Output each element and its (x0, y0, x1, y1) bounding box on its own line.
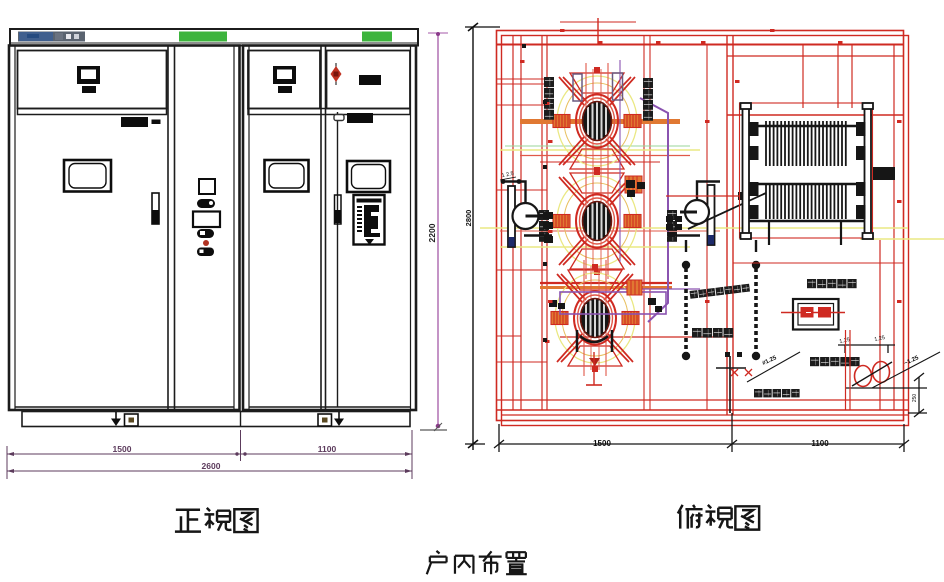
svg-text:1500: 1500 (113, 444, 132, 454)
svg-text:250: 250 (912, 394, 918, 403)
svg-text:1100: 1100 (811, 439, 829, 448)
svg-text:2200: 2200 (427, 223, 437, 242)
svg-text:2800: 2800 (464, 210, 473, 227)
svg-text:1500: 1500 (593, 439, 611, 448)
svg-text:1100: 1100 (318, 444, 337, 454)
svg-text:2600: 2600 (202, 461, 221, 471)
